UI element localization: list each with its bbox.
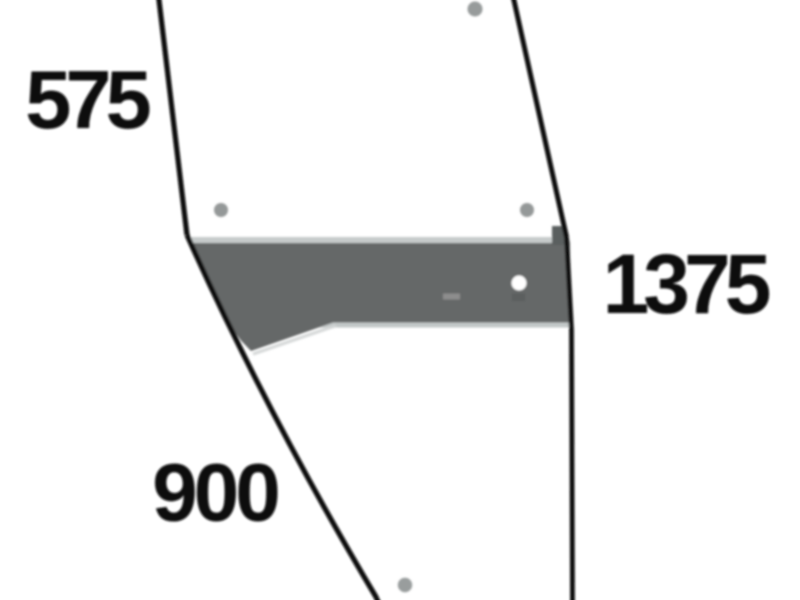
- svg-text:575: 575: [25, 53, 149, 146]
- svg-text:900: 900: [152, 448, 278, 539]
- svg-text:1375: 1375: [603, 237, 770, 331]
